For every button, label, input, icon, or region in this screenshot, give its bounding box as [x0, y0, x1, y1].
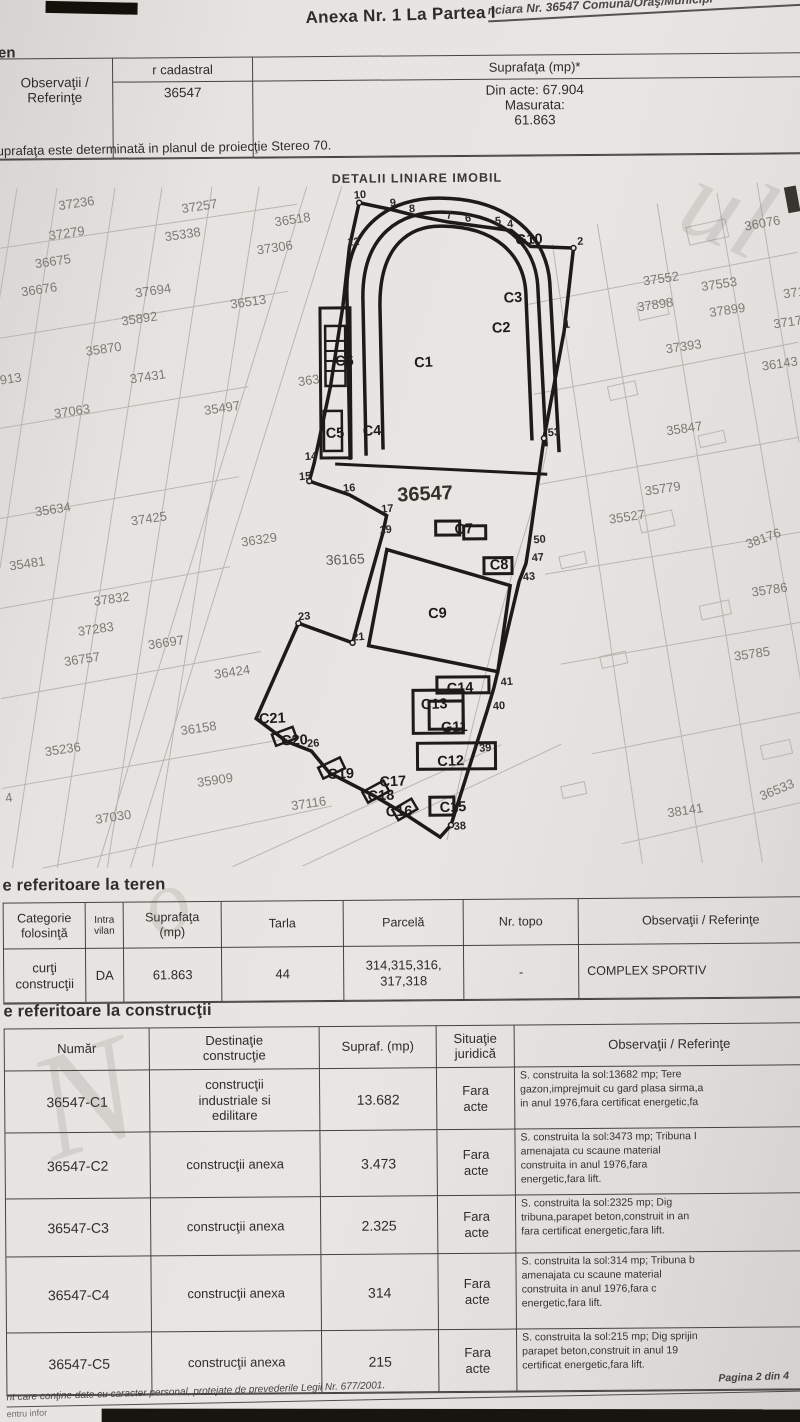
svg-text:36329: 36329 — [240, 529, 278, 549]
row-c1-supraf: 13.682 — [320, 1068, 437, 1131]
svg-text:C7: C7 — [454, 521, 473, 538]
cadastral-map: 3723637257365183607637279353383730636675… — [0, 182, 800, 868]
svg-text:10: 10 — [353, 189, 366, 202]
svg-text:C21: C21 — [259, 710, 286, 727]
svg-text:37279: 37279 — [48, 223, 86, 243]
svg-text:C16: C16 — [385, 803, 412, 820]
stadium-bottom-edge — [335, 462, 547, 476]
row-c1-destinatie: construcţii industriale si edilitare — [150, 1069, 320, 1132]
parcela-value: 314,315,316, 317,318 — [344, 946, 464, 1001]
svg-text:37552: 37552 — [642, 268, 680, 288]
svg-text:C9: C9 — [428, 605, 447, 622]
row-c4-observatii: S. construita la sol:314 mp; Tribuna b a… — [516, 1251, 800, 1329]
svg-text:8: 8 — [409, 203, 416, 215]
parcel-number-labels: 3723637257365183607637279353383730636675… — [0, 187, 800, 827]
svg-text:36697: 36697 — [147, 632, 185, 652]
svg-text:1: 1 — [563, 319, 570, 331]
map-title: DETALII LINIARE IMOBIL — [327, 171, 507, 186]
svg-text:19: 19 — [379, 524, 392, 537]
svg-text:50: 50 — [533, 533, 546, 546]
svg-text:C18: C18 — [367, 788, 394, 805]
svg-text:36675: 36675 — [34, 251, 72, 271]
svg-text:41: 41 — [500, 676, 513, 689]
svg-text:35338: 35338 — [164, 224, 202, 244]
svg-text:363: 363 — [297, 371, 321, 389]
svg-text:C14: C14 — [446, 680, 473, 697]
svg-text:35870: 35870 — [85, 339, 123, 359]
col-header-nr-cadastral: r cadastral — [113, 58, 253, 83]
svg-text:C2: C2 — [492, 320, 511, 337]
row-c2-observatii: S. construita la sol:3473 mp; Tribuna I … — [515, 1127, 800, 1195]
row-c2-supraf: 3.473 — [320, 1130, 438, 1197]
observatii-teren-value: COMPLEX SPORTIV — [579, 943, 800, 999]
svg-text:26: 26 — [307, 737, 320, 750]
row-c1-observatii: S. construita la sol:13682 mp; Tere gazo… — [515, 1065, 800, 1129]
svg-text:913: 913 — [0, 370, 22, 388]
col-header-intravilan: Intra vilan — [86, 903, 124, 949]
redaction-mark — [45, 1, 137, 15]
svg-text:35481: 35481 — [8, 553, 46, 573]
row-c3-destinatie: construcţii anexa — [151, 1197, 321, 1256]
svg-text:36513: 36513 — [229, 292, 267, 312]
row-c4-destinatie: construcţii anexa — [151, 1255, 322, 1332]
svg-text:35786: 35786 — [750, 579, 788, 599]
stadium-track-inner — [379, 225, 532, 449]
page-bottom-edge — [102, 1409, 800, 1422]
svg-text:C1: C1 — [414, 355, 433, 372]
svg-text:36424: 36424 — [213, 662, 251, 682]
col-header-observatii-teren: Observaţii / Referinţe — [579, 897, 800, 945]
row-c3-supraf: 2.325 — [321, 1196, 438, 1255]
svg-text:C19: C19 — [327, 766, 354, 783]
svg-text:37236: 37236 — [57, 193, 95, 213]
svg-text:53: 53 — [547, 426, 560, 439]
scanned-document-photo: nciara Nr. 36547 Comuna/Oraş/Municipi An… — [0, 0, 800, 1422]
svg-text:36076: 36076 — [743, 212, 781, 233]
svg-text:38141: 38141 — [666, 800, 704, 820]
svg-text:21: 21 — [352, 631, 365, 644]
svg-text:36547: 36547 — [397, 482, 454, 506]
svg-text:2: 2 — [577, 236, 584, 248]
svg-text:37425: 37425 — [130, 508, 168, 528]
svg-text:36165: 36165 — [325, 550, 365, 568]
svg-text:35909: 35909 — [196, 770, 234, 790]
page-title: Anexa Nr. 1 La Partea I — [235, 1, 565, 30]
row-c3-numar: 36547-C3 — [6, 1198, 151, 1257]
constructii-table: Număr Destinaţie construcţie Supraf. (mp… — [4, 1022, 800, 1396]
svg-text:40: 40 — [492, 700, 505, 713]
svg-text:37257: 37257 — [180, 196, 218, 216]
row-c5-numar: 36547-C5 — [7, 1332, 152, 1395]
row-c4-numar: 36547-C4 — [6, 1256, 152, 1333]
section-heading-constructii: e referitoare la construcţii — [3, 1001, 211, 1022]
svg-text:35892: 35892 — [120, 308, 158, 328]
svg-text:14: 14 — [304, 450, 318, 463]
svg-text:37832: 37832 — [93, 589, 131, 609]
intravilan-value: DA — [86, 949, 124, 1003]
svg-text:12: 12 — [347, 236, 360, 249]
svg-text:37030: 37030 — [94, 807, 132, 827]
svg-text:38176: 38176 — [744, 525, 783, 552]
svg-text:36158: 36158 — [180, 718, 218, 738]
col-header-parcela: Parcelă — [344, 900, 464, 947]
svg-text:39: 39 — [479, 742, 492, 755]
col-header-categorie: Categorie folosinţă — [4, 903, 86, 950]
svg-text:17: 17 — [381, 503, 394, 516]
svg-text:16: 16 — [343, 482, 356, 495]
teren-table: Categorie folosinţă Intra vilan Suprafaţ… — [3, 896, 800, 1004]
row-c2-situatie: Fara acte — [437, 1130, 516, 1197]
svg-text:37116: 37116 — [290, 793, 327, 813]
svg-text:37063: 37063 — [53, 401, 91, 421]
row-c4-supraf: 314 — [321, 1254, 439, 1331]
svg-text:35785: 35785 — [733, 644, 771, 664]
svg-text:37306: 37306 — [256, 237, 294, 257]
background-parcel-lines — [0, 182, 800, 868]
svg-text:37694: 37694 — [134, 280, 172, 300]
svg-text:37553: 37553 — [700, 274, 738, 294]
svg-text:C5: C5 — [325, 425, 344, 442]
svg-text:36676: 36676 — [20, 279, 58, 299]
svg-text:35847: 35847 — [665, 418, 703, 438]
svg-text:36143: 36143 — [761, 353, 799, 373]
svg-text:4: 4 — [4, 790, 13, 806]
col-header-observatii-constructii: Observaţii / Referinţe — [515, 1023, 800, 1067]
svg-text:37283: 37283 — [77, 619, 115, 639]
svg-text:35634: 35634 — [34, 499, 72, 519]
col-header-supraf: Supraf. (mp) — [320, 1026, 437, 1069]
row-c4-situatie: Fara acte — [438, 1254, 517, 1331]
svg-text:37899: 37899 — [708, 300, 746, 320]
svg-text:7: 7 — [446, 210, 453, 222]
svg-text:36757: 36757 — [63, 649, 101, 669]
footer-fragment: entru infor — [6, 1408, 47, 1420]
section-heading-teren: e referitoare la teren — [2, 875, 165, 895]
col-header-tarla: Tarla — [222, 901, 344, 948]
svg-text:35497: 35497 — [203, 398, 241, 418]
svg-text:38: 38 — [453, 820, 466, 833]
svg-text:G10: G10 — [515, 231, 543, 248]
col-header-destinatie: Destinaţie construcţie — [150, 1027, 320, 1070]
row-c2-destinatie: construcţii anexa — [150, 1131, 321, 1198]
svg-text:C8: C8 — [489, 557, 508, 574]
svg-text:C3: C3 — [503, 290, 522, 307]
svg-text:C13: C13 — [421, 696, 448, 713]
svg-text:35779: 35779 — [644, 478, 682, 498]
svg-text:35236: 35236 — [44, 739, 82, 759]
nr-topo-value: - — [464, 945, 579, 1000]
svg-text:3717: 3717 — [782, 282, 800, 301]
svg-text:47: 47 — [531, 551, 544, 564]
svg-text:23: 23 — [298, 610, 311, 623]
svg-text:43: 43 — [522, 571, 535, 584]
col-header-suprafata-mp: Suprafaţa (mp) — [124, 902, 222, 949]
svg-text:37393: 37393 — [665, 336, 703, 356]
col-header-numar: Număr — [5, 1028, 150, 1071]
row-c1-situatie: Fara acte — [437, 1068, 515, 1131]
svg-text:6: 6 — [465, 212, 472, 224]
row-c3-observatii: S. construita la sol:2325 mp; Dig tribun… — [516, 1193, 800, 1253]
svg-text:37177: 37177 — [772, 311, 800, 331]
col-header-nr-topo: Nr. topo — [464, 899, 579, 946]
tarla-value: 44 — [222, 947, 344, 1002]
svg-text:36533: 36533 — [757, 776, 796, 804]
svg-text:5: 5 — [495, 215, 502, 227]
svg-text:36518: 36518 — [274, 209, 312, 229]
document-sheet: nciara Nr. 36547 Comuna/Oraş/Municipi An… — [0, 0, 800, 1422]
row-c3-situatie: Fara acte — [438, 1196, 516, 1255]
svg-text:C15: C15 — [439, 799, 466, 816]
svg-text:9: 9 — [389, 197, 396, 209]
col-header-situatie: Situaţie juridică — [437, 1026, 515, 1069]
svg-text:C20: C20 — [281, 732, 308, 749]
svg-text:G11: G11 — [441, 719, 468, 736]
row-c2-numar: 36547-C2 — [5, 1132, 151, 1199]
row-c1-numar: 36547-C1 — [5, 1070, 150, 1133]
svg-text:C12: C12 — [437, 753, 464, 770]
svg-text:C6: C6 — [335, 353, 354, 370]
svg-text:C4: C4 — [362, 423, 381, 440]
svg-text:15: 15 — [299, 470, 312, 483]
categorie-value: curţi construcţii — [4, 949, 86, 1004]
suprafata-teren-value: 61.863 — [124, 948, 222, 1003]
